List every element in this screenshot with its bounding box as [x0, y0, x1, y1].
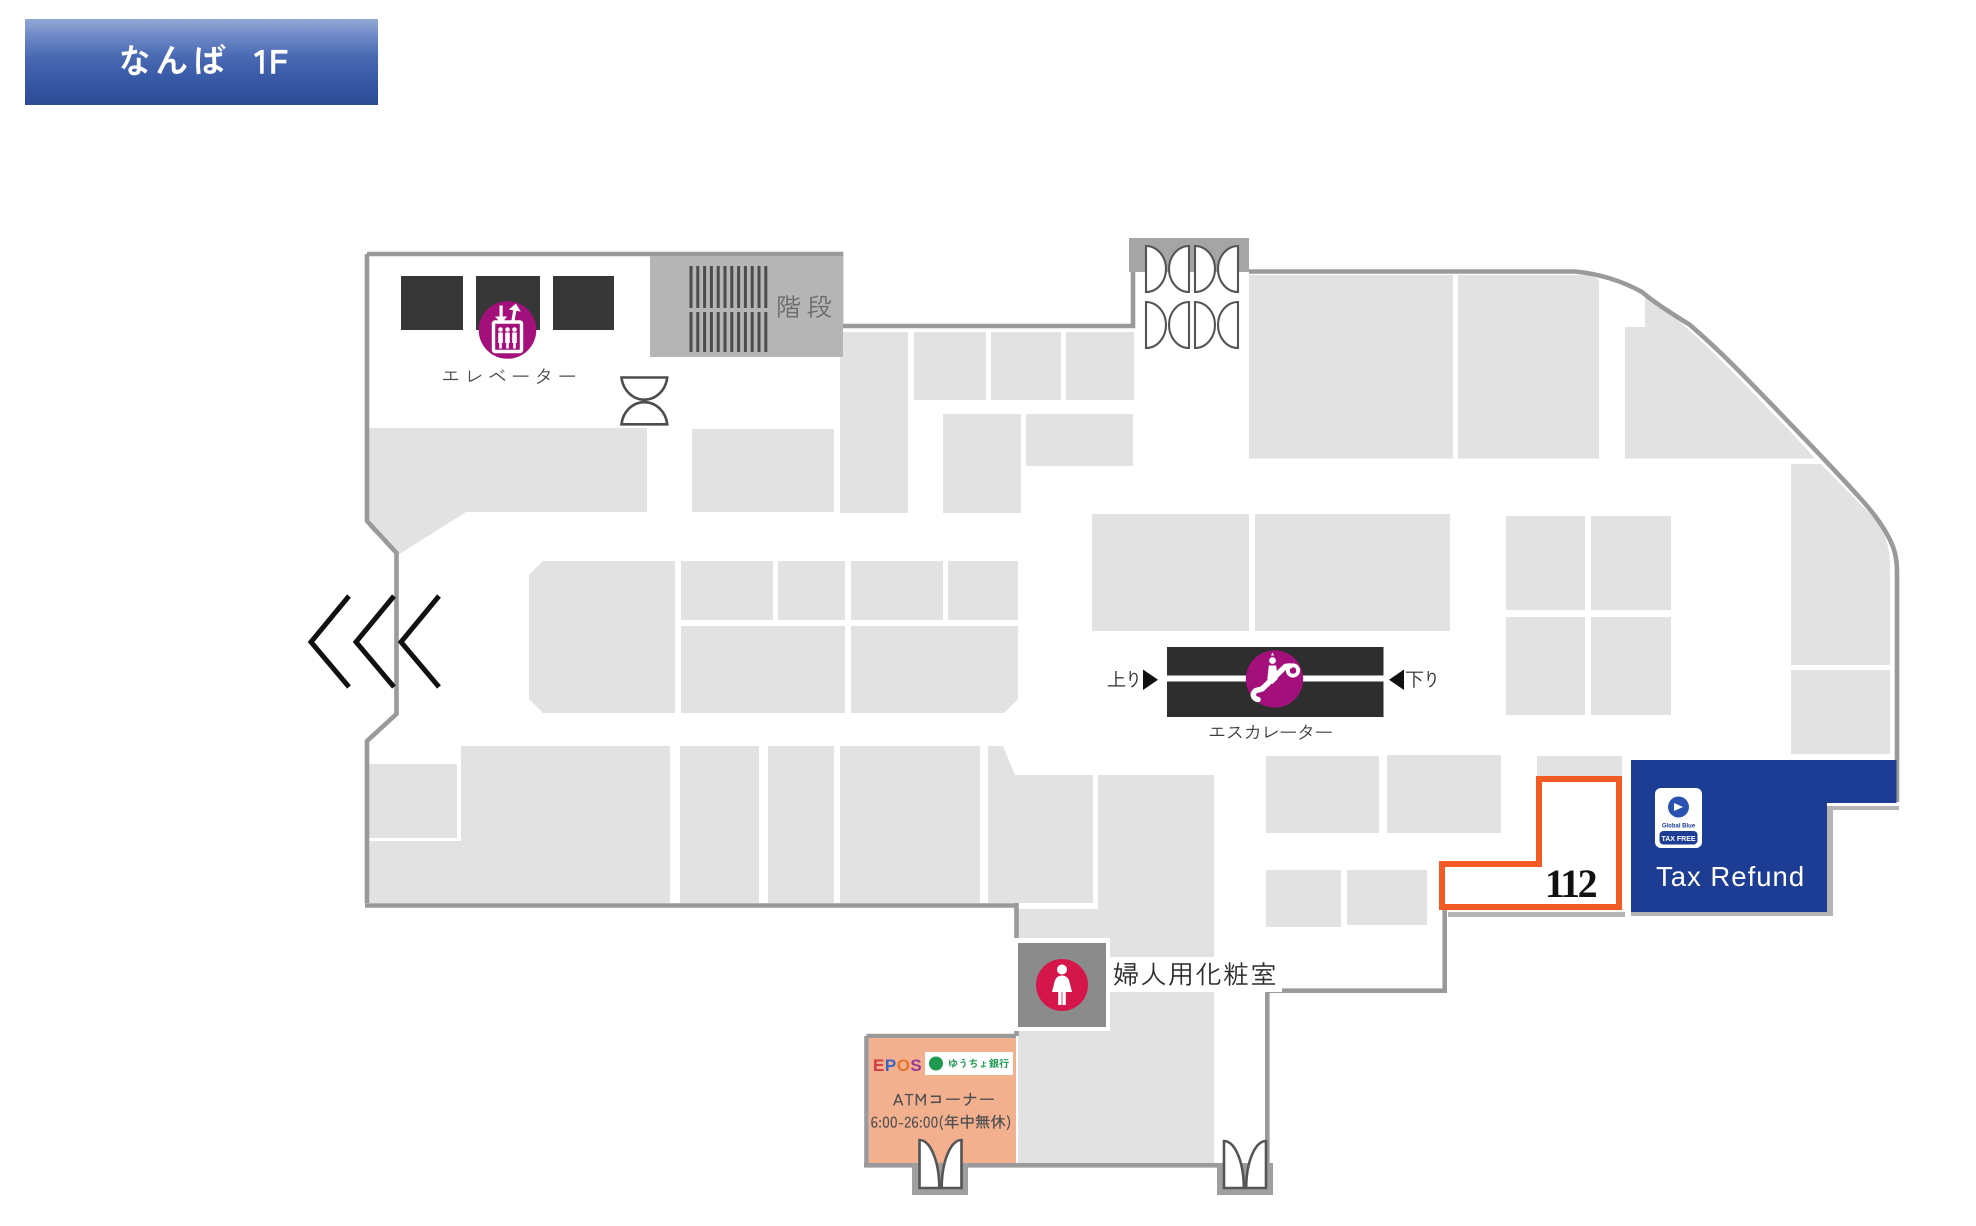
- svg-text:EPOS: EPOS: [873, 1056, 922, 1075]
- svg-text:Global Blue: Global Blue: [1662, 824, 1696, 830]
- svg-text:112: 112: [1545, 861, 1597, 906]
- svg-text:Tax Refund: Tax Refund: [1656, 861, 1805, 892]
- svg-text:TAX FREE: TAX FREE: [1661, 836, 1695, 843]
